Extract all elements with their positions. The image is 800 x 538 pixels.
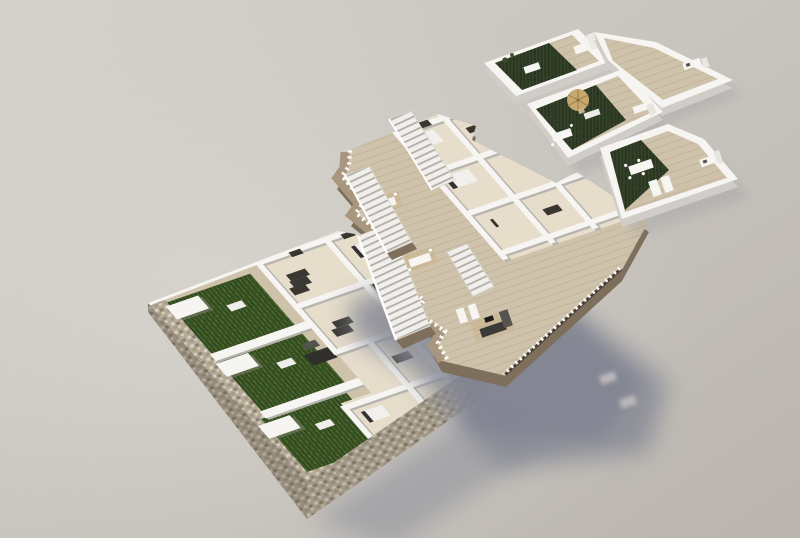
render-stage [0, 0, 800, 538]
terrace-1-bush-2 [510, 53, 514, 57]
terrace-1-bush [502, 57, 507, 62]
floor-plan-render [0, 0, 800, 538]
straw-parasol [567, 89, 589, 111]
